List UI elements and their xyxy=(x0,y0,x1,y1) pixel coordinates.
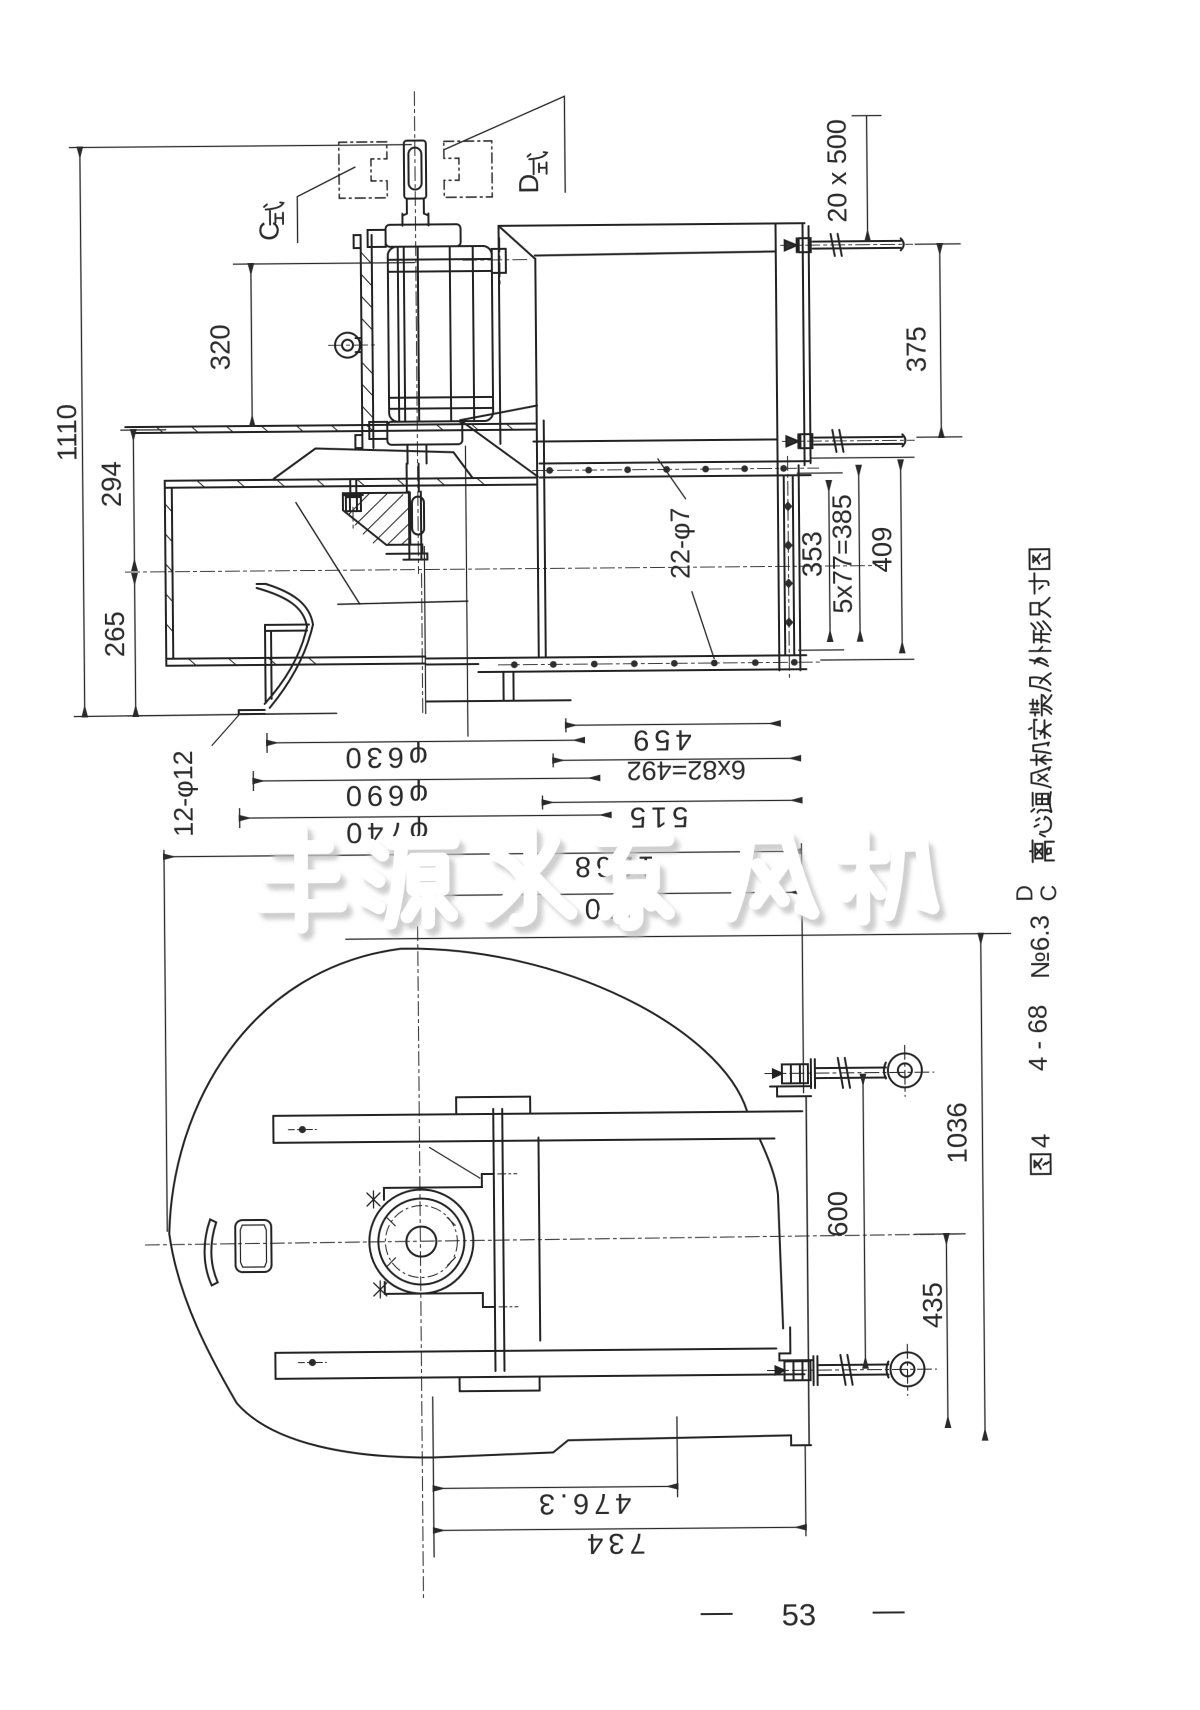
svg-text:№6.3: №6.3 xyxy=(1025,915,1056,979)
svg-text:22-φ7: 22-φ7 xyxy=(665,507,696,579)
svg-text:294: 294 xyxy=(96,461,127,507)
svg-text:D: D xyxy=(513,174,544,194)
svg-text:600: 600 xyxy=(822,1191,853,1237)
svg-text:φ690: φ690 xyxy=(341,778,428,811)
svg-text:734: 734 xyxy=(582,1527,646,1560)
svg-text:353: 353 xyxy=(796,531,827,577)
svg-text:53: 53 xyxy=(781,1597,816,1632)
svg-text:265: 265 xyxy=(99,611,130,657)
svg-text:C: C xyxy=(253,221,284,241)
svg-text:12-φ12: 12-φ12 xyxy=(168,750,199,837)
svg-text:409: 409 xyxy=(866,526,897,572)
svg-text:375: 375 xyxy=(900,326,931,372)
svg-text:515: 515 xyxy=(625,800,689,833)
svg-text:20 x 500: 20 x 500 xyxy=(822,119,853,223)
svg-text:1036: 1036 xyxy=(941,1102,973,1163)
svg-text:459: 459 xyxy=(628,723,692,756)
svg-text:5x77=385: 5x77=385 xyxy=(827,494,858,614)
svg-text:1110: 1110 xyxy=(51,404,82,461)
svg-text:4 - 68: 4 - 68 xyxy=(1022,1005,1053,1072)
svg-text:476.3: 476.3 xyxy=(534,1487,632,1520)
svg-text:C: C xyxy=(1035,885,1061,902)
svg-text:D: D xyxy=(1011,885,1037,902)
svg-text:φ630: φ630 xyxy=(340,741,427,774)
svg-text:4: 4 xyxy=(1025,1134,1055,1149)
svg-text:320: 320 xyxy=(204,324,235,370)
svg-text:6x82=492: 6x82=492 xyxy=(626,755,746,786)
svg-text:435: 435 xyxy=(917,1282,948,1328)
